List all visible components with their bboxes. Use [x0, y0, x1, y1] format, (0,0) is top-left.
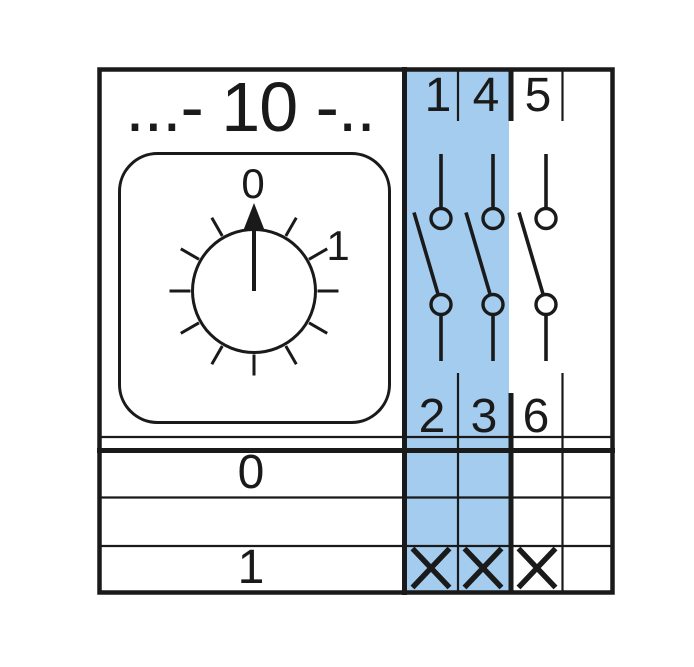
grid-lines: [97, 67, 615, 595]
x-mark: [516, 546, 558, 590]
contact-1: [414, 154, 451, 361]
contact-3: [519, 154, 556, 361]
terminal-top-1: 1: [425, 72, 452, 120]
terminal-bottom-6: 6: [523, 393, 550, 441]
contacts: [414, 154, 556, 361]
cam-switch-wiring-diagram: ...- 10 -.. 0 1 1 4 5 2 3 6 0 1: [0, 0, 694, 667]
table-row-position-0: 0: [238, 449, 265, 497]
dial-position-0-label: 0: [241, 163, 264, 205]
terminal-bottom-3: 3: [471, 393, 498, 441]
dial-position-1-label: 1: [326, 225, 349, 267]
table-row-position-1: 1: [238, 544, 265, 592]
outer-border: [100, 70, 613, 593]
terminal-top-5: 5: [525, 72, 552, 120]
terminal-bottom-2: 2: [419, 393, 446, 441]
x-mark: [462, 546, 504, 590]
dial-pointer-arrow: [244, 203, 265, 291]
x-mark: [410, 546, 452, 590]
contact-2: [466, 154, 503, 361]
switch-type-title: ...- 10 -..: [125, 72, 375, 142]
terminal-top-4: 4: [473, 72, 500, 120]
